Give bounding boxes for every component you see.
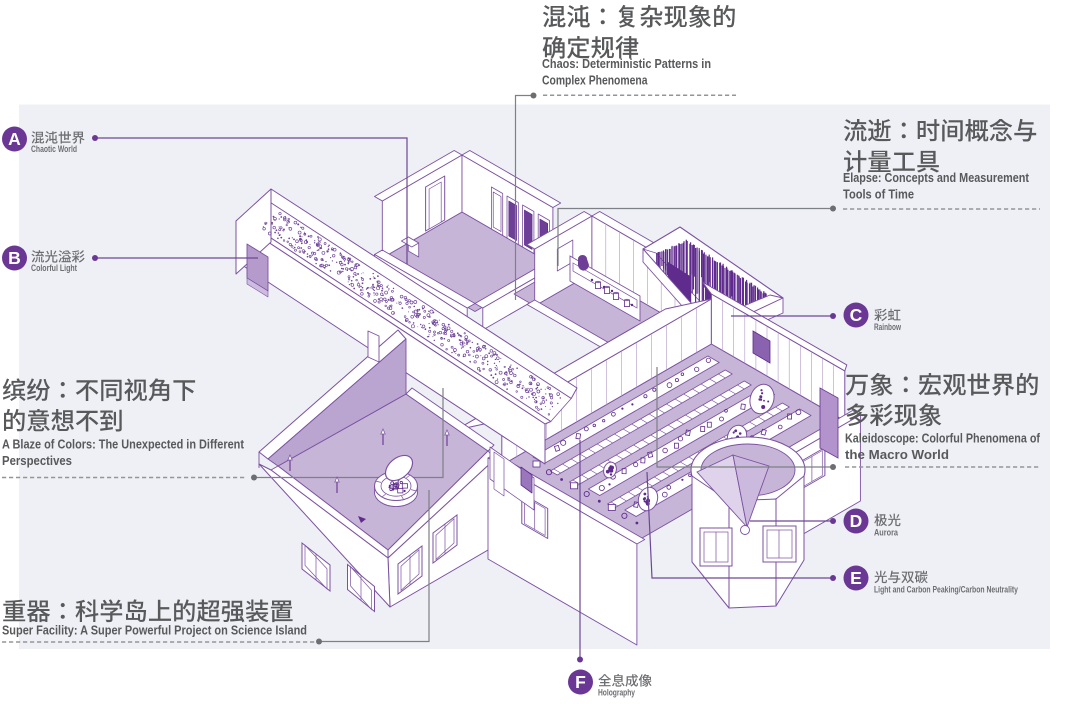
svg-text:Colorful Light: Colorful Light: [31, 263, 78, 274]
svg-text:C: C: [850, 305, 863, 325]
svg-text:F: F: [575, 672, 586, 692]
svg-text:Complex Phenomena: Complex Phenomena: [542, 73, 648, 88]
svg-text:Elapse: Concepts and Measureme: Elapse: Concepts and Measurement: [843, 170, 1030, 185]
svg-text:E: E: [850, 568, 862, 588]
svg-text:A Blaze of Colors: The Unexpec: A Blaze of Colors: The Unexpected in Dif…: [2, 437, 245, 452]
svg-text:Aurora: Aurora: [874, 528, 899, 539]
svg-text:Tools of Time: Tools of Time: [843, 187, 914, 202]
svg-text:A: A: [8, 129, 21, 149]
svg-text:Rainbow: Rainbow: [874, 322, 901, 333]
svg-text:Super Facility: A Super Powerf: Super Facility: A Super Powerful Project…: [2, 623, 307, 638]
svg-text:Perspectives: Perspectives: [2, 453, 72, 468]
svg-text:B: B: [8, 248, 21, 268]
svg-text:Kaleidoscope: Colorful Phenome: Kaleidoscope: Colorful Phenomena of: [845, 431, 1041, 446]
svg-text:Light and Carbon Peaking/Carbo: Light and Carbon Peaking/Carbon Neutrali…: [874, 585, 1019, 596]
svg-text:Chaotic World: Chaotic World: [31, 144, 77, 155]
svg-text:Chaos: Deterministic Patterns: Chaos: Deterministic Patterns in: [542, 56, 711, 71]
svg-text:Holography: Holography: [598, 688, 636, 699]
svg-text:D: D: [850, 511, 863, 531]
svg-text:the Macro World: the Macro World: [845, 447, 949, 462]
